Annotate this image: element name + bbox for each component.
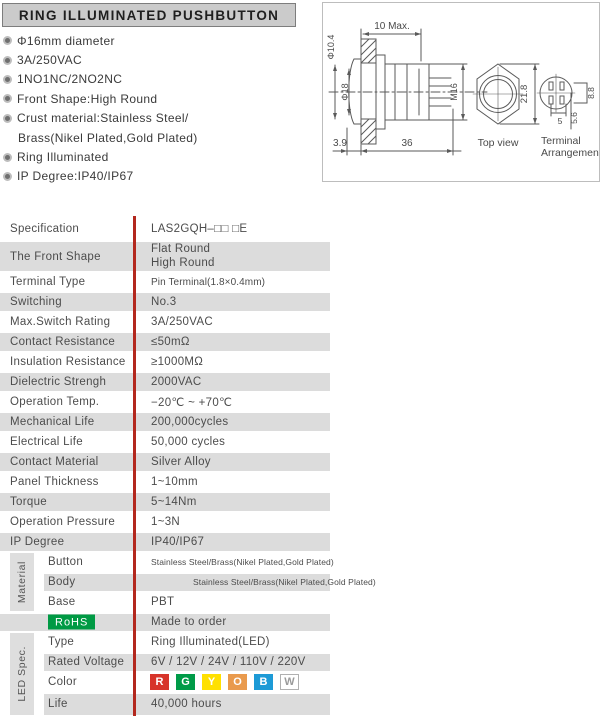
table-row: Contact Material Silver Alloy: [0, 452, 330, 472]
dim-5: 5: [558, 116, 563, 126]
dim-8-8: 8.8: [586, 87, 596, 99]
table-row: Body Stainless Steel/Brass(Nikel Plated,…: [0, 572, 330, 592]
row-label: Life: [48, 698, 68, 710]
feature-item: Front Shape:High Round: [3, 89, 198, 108]
row-label: Insulation Resistance: [0, 356, 141, 368]
caption-top-view: Top view: [478, 137, 519, 149]
feature-item: Φ16mm diameter: [3, 31, 198, 50]
feature-item: 3A/250VAC: [3, 50, 198, 69]
table-row: Switching No.3: [0, 292, 330, 312]
row-label: Operation Pressure: [0, 516, 141, 528]
color-badge-yellow: Y: [202, 674, 221, 690]
table-row: Electrical Life 50,000 cycles: [0, 432, 330, 452]
row-value: −20℃ ~ +70℃: [141, 395, 330, 409]
row-label: Switching: [0, 296, 141, 308]
feature-list: Φ16mm diameter 3A/250VAC 1NO1NC/2NO2NC F…: [3, 31, 198, 186]
feature-item: IP Degree:IP40/IP67: [3, 167, 198, 186]
row-label: Button: [48, 556, 83, 568]
feature-text: IP Degree:IP40/IP67: [17, 169, 134, 183]
feature-item: 1NO1NC/2NO2NC: [3, 70, 198, 89]
feature-text: Brass(Nikel Plated,Gold Plated): [18, 131, 198, 145]
table-row: Insulation Resistance ≥1000MΩ: [0, 352, 330, 372]
row-value: 3A/250VAC: [141, 316, 330, 328]
row-value: Pin Terminal(1.8×0.4mm): [141, 277, 330, 288]
table-row: Type Ring Illuminated(LED): [0, 632, 330, 652]
dimension-drawing: Φ10.4 Φ18 10 Max. M16 3.9 36 21.8 8.8 5.…: [323, 3, 599, 181]
row-label: Dielectric Strengh: [0, 376, 141, 388]
table-row: Life 40,000 hours: [0, 692, 330, 716]
page-title: RING ILLUMINATED PUSHBUTTON: [2, 3, 296, 27]
row-value: Ring Illuminated(LED): [151, 636, 270, 648]
led-spec-group-label: LED Spec.: [10, 633, 34, 715]
row-value-line1: Flat Round: [151, 243, 210, 255]
row-label: Base: [48, 596, 75, 608]
dim-3-9: 3.9: [333, 138, 347, 149]
bullet-icon: [3, 94, 12, 103]
row-value: LAS2GQH–□□ □E: [141, 223, 330, 235]
material-section: Material Button Stainless Steel/Brass(Ni…: [0, 552, 330, 612]
row-value: 2000VAC: [141, 376, 330, 388]
table-row: Contact Resistance ≤50mΩ: [0, 332, 330, 352]
row-value-line2: High Round: [151, 257, 215, 269]
bullet-icon: [3, 153, 12, 162]
row-label: Operation Temp.: [0, 396, 141, 408]
dim-dia-18: Φ18: [340, 83, 350, 100]
led-color-badges: R G Y O B W: [150, 674, 299, 690]
row-value: 200,000cycles: [141, 416, 330, 428]
table-row: Panel Thickness 1~10mm: [0, 472, 330, 492]
row-value: No.3: [141, 296, 330, 308]
bullet-icon: [3, 36, 12, 45]
caption-terminal-2: Arrangement: [541, 147, 599, 159]
table-row: Specification LAS2GQH–□□ □E: [0, 217, 330, 241]
feature-text: Ring Illuminated: [17, 150, 109, 164]
feature-item: Ring Illuminated: [3, 147, 198, 166]
row-label: Mechanical Life: [0, 416, 141, 428]
color-badge-white: W: [280, 674, 299, 690]
table-row: The Front Shape Flat Round High Round: [0, 241, 330, 272]
table-row: Operation Pressure 1~3N: [0, 512, 330, 532]
row-label: Color: [48, 676, 77, 688]
specification-table: Specification LAS2GQH–□□ □E The Front Sh…: [0, 217, 335, 716]
row-value: 1~3N: [141, 516, 330, 528]
row-label: Rated Voltage: [48, 656, 124, 668]
row-value: IP40/IP67: [141, 536, 330, 548]
table-row: Base PBT: [0, 592, 330, 612]
technical-drawing-panel: Φ10.4 Φ18 10 Max. M16 3.9 36 21.8 8.8 5.…: [322, 2, 600, 182]
caption-terminal-1: Terminal: [541, 135, 581, 147]
row-value: 1~10mm: [141, 476, 330, 488]
row-label: Type: [48, 636, 74, 648]
color-badge-orange: O: [228, 674, 247, 690]
row-value: Stainless Steel/Brass(Nikel Plated,Gold …: [151, 557, 334, 567]
row-label: Max.Switch Rating: [0, 316, 141, 328]
color-badge-blue: B: [254, 674, 273, 690]
row-label: Contact Resistance: [0, 336, 141, 348]
row-value: Flat Round High Round: [141, 243, 330, 270]
row-value: Made to order: [151, 616, 227, 628]
row-value: 6V / 12V / 24V / 110V / 220V: [151, 656, 306, 668]
table-row-led-color: Color R G Y O B W: [0, 672, 330, 692]
material-group-label: Material: [10, 553, 34, 611]
dim-36: 36: [401, 138, 413, 149]
dim-thread-m16: M16: [449, 83, 459, 101]
table-row: Max.Switch Rating 3A/250VAC: [0, 312, 330, 332]
table-row: Button Stainless Steel/Brass(Nikel Plate…: [0, 552, 330, 572]
row-label: Contact Material: [0, 456, 141, 468]
row-label: Electrical Life: [0, 436, 141, 448]
dim-panel-max: 10 Max.: [374, 21, 410, 32]
dim-21-8: 21.8: [519, 85, 530, 104]
row-label: The Front Shape: [0, 251, 141, 263]
color-badge-green: G: [176, 674, 195, 690]
bullet-icon: [3, 114, 12, 123]
color-badge-red: R: [150, 674, 169, 690]
row-value: 5~14Nm: [141, 496, 330, 508]
table-row: Dielectric Strengh 2000VAC: [0, 372, 330, 392]
led-spec-section: LED Spec. Type Ring Illuminated(LED) Rat…: [0, 632, 330, 716]
feature-item: Crust material:Stainless Steel/: [3, 109, 198, 128]
feature-text: 1NO1NC/2NO2NC: [17, 72, 122, 86]
row-value: Silver Alloy: [141, 456, 330, 468]
row-label: Torque: [0, 496, 141, 508]
row-value: 40,000 hours: [151, 698, 222, 710]
feature-text: Crust material:Stainless Steel/: [17, 111, 189, 125]
bullet-icon: [3, 56, 12, 65]
row-label: Panel Thickness: [0, 476, 141, 488]
bullet-icon: [3, 75, 12, 84]
row-value: ≤50mΩ: [141, 336, 330, 348]
column-divider-line: [133, 216, 136, 716]
feature-text: 3A/250VAC: [17, 53, 82, 67]
table-row: Mechanical Life 200,000cycles: [0, 412, 330, 432]
row-value: ≥1000MΩ: [141, 356, 330, 368]
row-label: Body: [48, 576, 75, 588]
page-title-text: RING ILLUMINATED PUSHBUTTON: [19, 8, 279, 23]
table-row: Rated Voltage 6V / 12V / 24V / 110V / 22…: [0, 652, 330, 672]
dim-dia-10-4: Φ10.4: [326, 35, 336, 60]
table-row: Terminal Type Pin Terminal(1.8×0.4mm): [0, 272, 330, 292]
rohs-row: RoHS Made to order: [0, 612, 330, 632]
feature-item-continuation: Brass(Nikel Plated,Gold Plated): [3, 128, 198, 147]
row-label: Terminal Type: [0, 276, 141, 288]
row-value: 50,000 cycles: [141, 436, 330, 448]
table-row: Torque 5~14Nm: [0, 492, 330, 512]
dim-5-6: 5.6: [569, 112, 579, 124]
bullet-icon: [3, 172, 12, 181]
table-row: Operation Temp. −20℃ ~ +70℃: [0, 392, 330, 412]
table-row: IP Degree IP40/IP67: [0, 532, 330, 552]
feature-text: Front Shape:High Round: [17, 92, 157, 106]
row-label: IP Degree: [0, 536, 141, 548]
row-label: Specification: [0, 223, 141, 235]
feature-text: Φ16mm diameter: [17, 34, 115, 48]
rohs-badge: RoHS: [48, 615, 95, 630]
row-value: PBT: [151, 596, 174, 608]
row-value: Stainless Steel/Brass(Nikel Plated,Gold …: [193, 577, 376, 587]
